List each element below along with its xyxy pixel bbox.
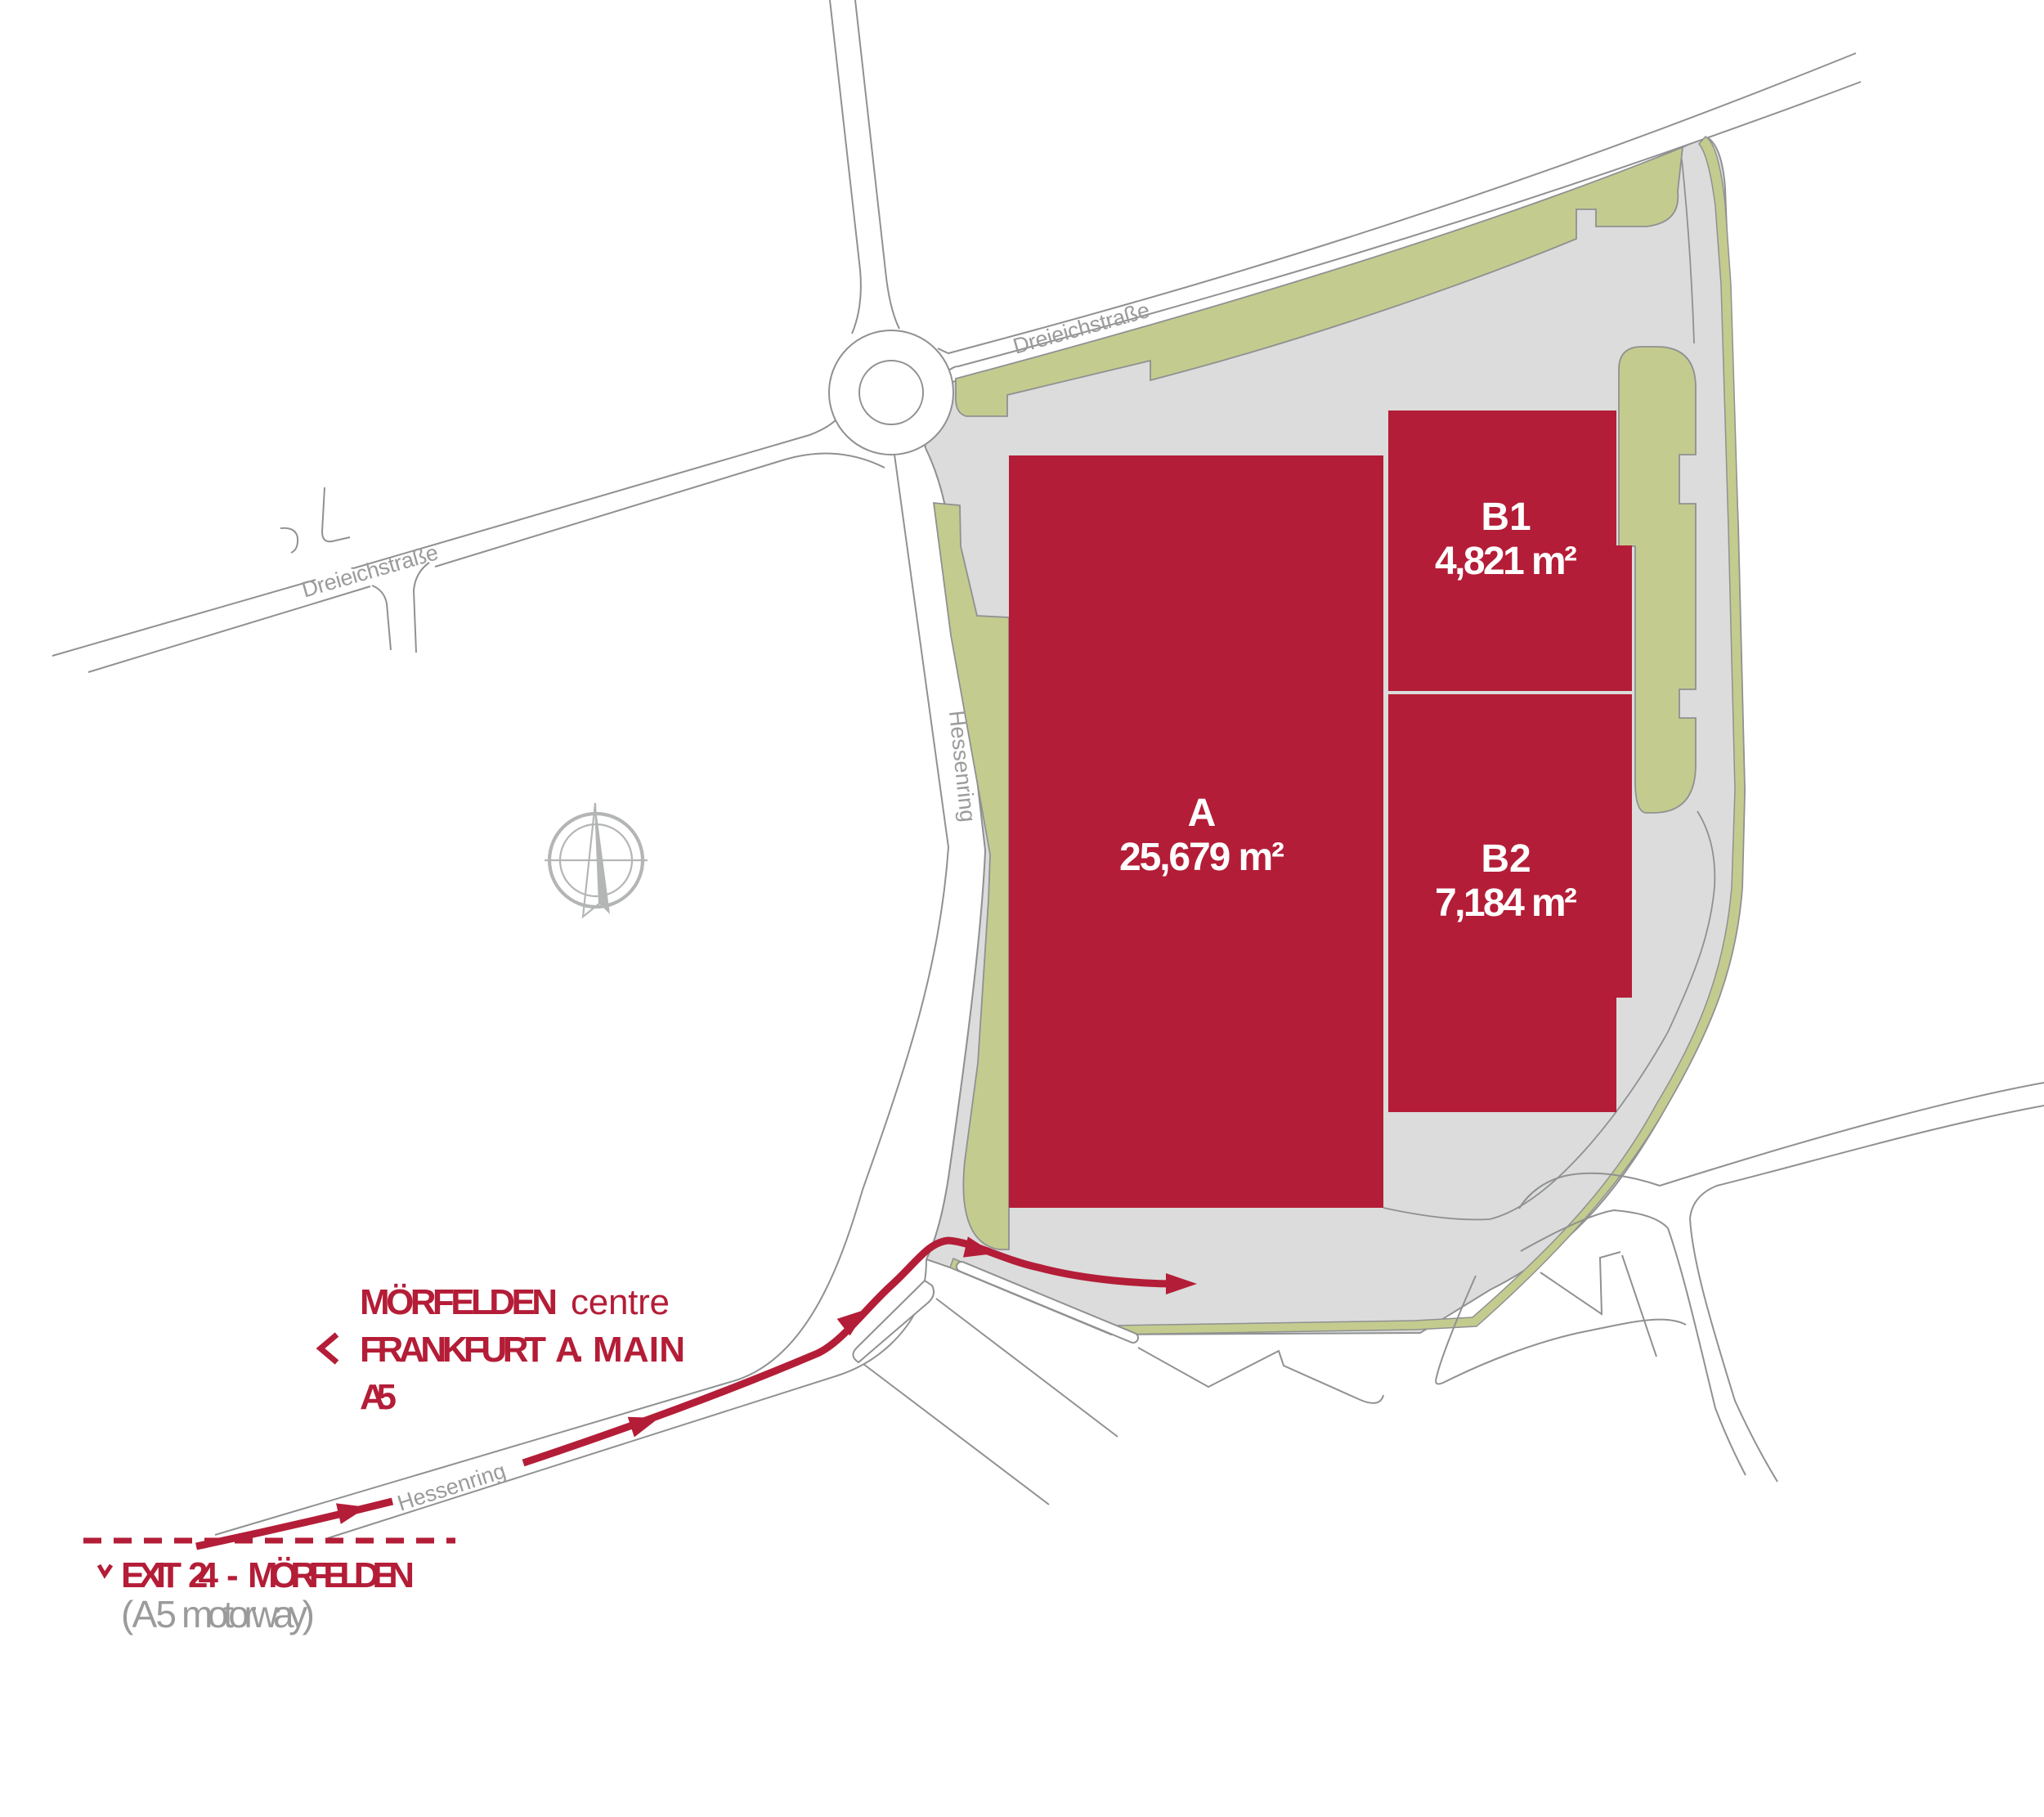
svg-text:B2: B2	[1481, 837, 1531, 881]
svg-text:A: A	[1188, 792, 1217, 835]
svg-text:-: -	[226, 1555, 239, 1595]
svg-text:centre: centre	[571, 1282, 670, 1322]
svg-text:A5: A5	[360, 1377, 397, 1417]
svg-text:EXIT: EXIT	[121, 1555, 182, 1595]
svg-text:FRANKFURT: FRANKFURT	[360, 1330, 546, 1370]
svg-text:A.: A.	[555, 1330, 584, 1370]
svg-text:MAIN: MAIN	[593, 1330, 685, 1370]
svg-text:7,184 m²: 7,184 m²	[1435, 882, 1577, 925]
svg-text:4,821 m²: 4,821 m²	[1435, 540, 1577, 583]
svg-text:(A5: (A5	[121, 1593, 177, 1635]
svg-text:24: 24	[188, 1555, 219, 1595]
svg-text:B1: B1	[1481, 496, 1531, 539]
svg-text:motorway): motorway)	[182, 1593, 315, 1635]
svg-text:MÖRFELDEN: MÖRFELDEN	[360, 1282, 558, 1322]
svg-text:25,679 m²: 25,679 m²	[1119, 836, 1284, 879]
svg-text:MÖRFELDEN: MÖRFELDEN	[248, 1555, 415, 1595]
